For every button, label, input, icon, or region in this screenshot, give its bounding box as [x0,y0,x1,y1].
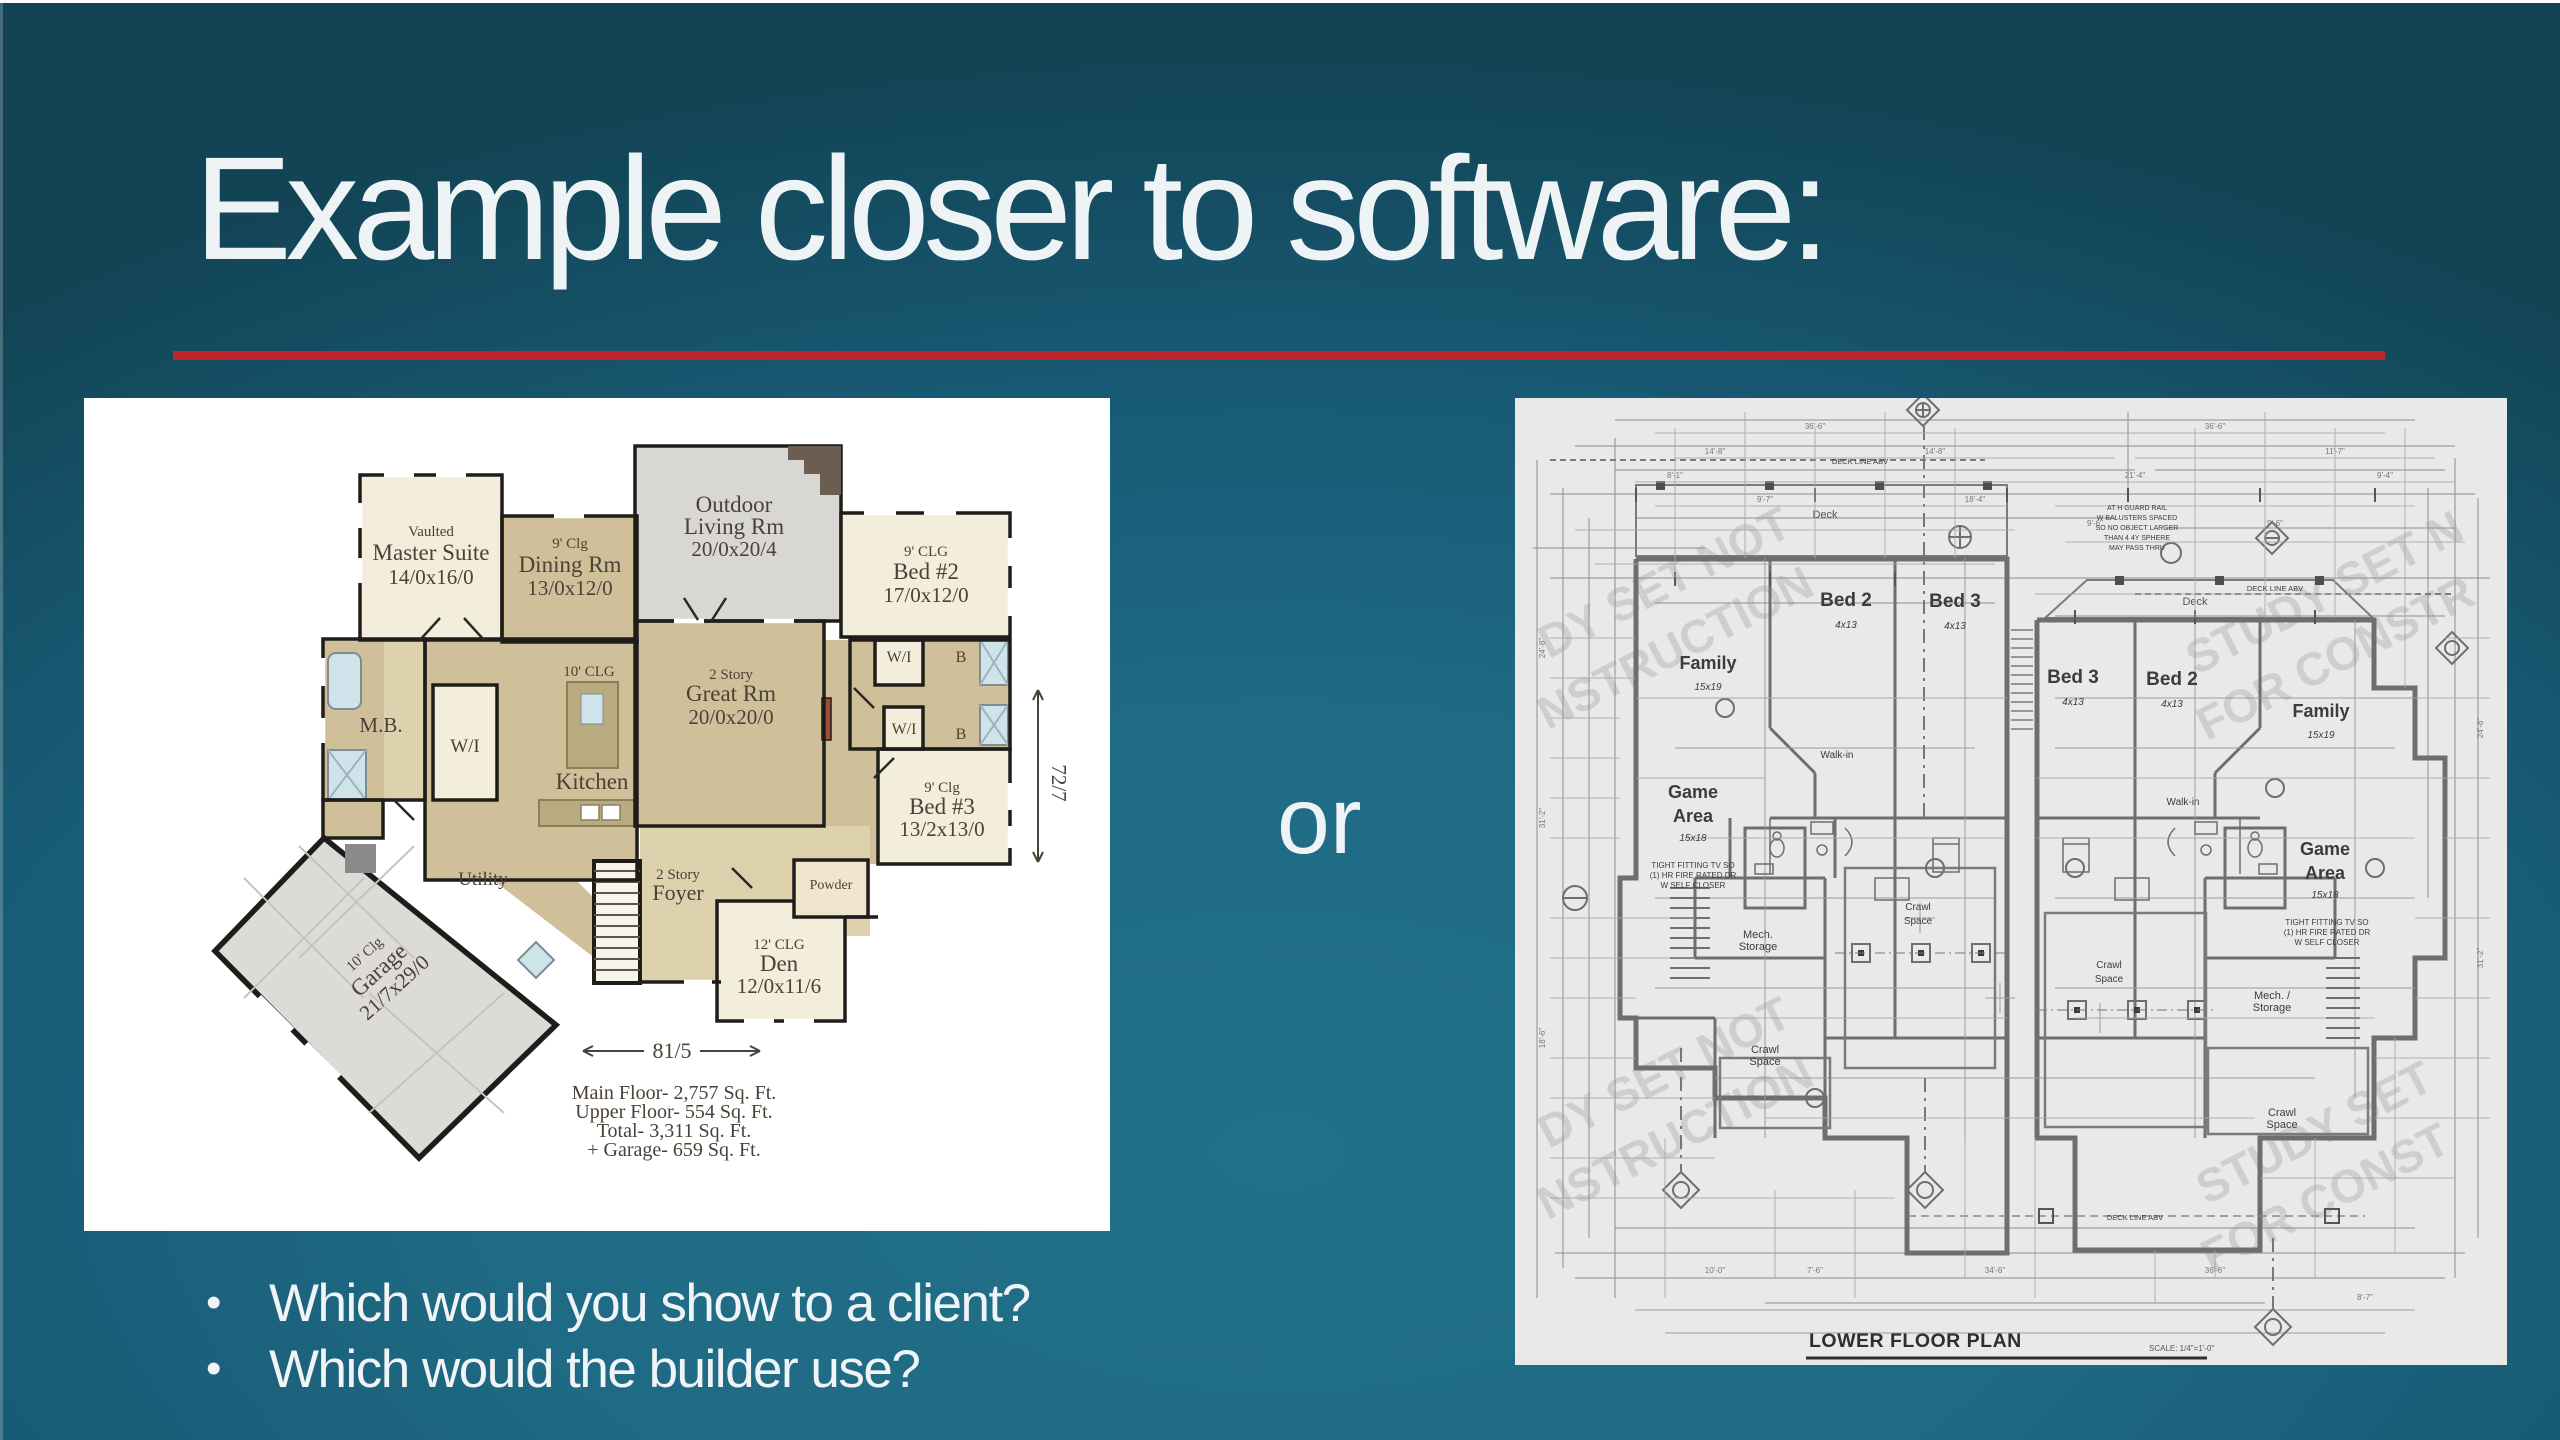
svg-text:12/0x11/6: 12/0x11/6 [737,974,821,998]
svg-text:Bed 2: Bed 2 [1820,590,1872,611]
svg-text:Great Rm: Great Rm [686,681,776,706]
svg-text:Master Suite: Master Suite [373,540,490,565]
svg-text:Bed 3: Bed 3 [2047,667,2099,688]
svg-text:B: B [956,726,967,743]
svg-text:9' CLG: 9' CLG [904,544,948,560]
svg-text:TIGHT FITTING TV SO: TIGHT FITTING TV SO [1651,861,1734,870]
svg-text:31'-2": 31'-2" [2476,948,2485,969]
svg-text:Mech.: Mech. [1743,929,1773,941]
svg-text:Space: Space [1904,916,1933,927]
svg-text:9'-7": 9'-7" [1757,495,1773,504]
svg-text:72/7: 72/7 [1047,764,1071,801]
svg-text:(1) HR FIRE RATED DR: (1) HR FIRE RATED DR [2284,928,2371,937]
svg-text:MAY PASS THRU: MAY PASS THRU [2109,545,2165,552]
svg-text:Walk-in: Walk-in [2167,797,2200,808]
svg-text:Kitchen: Kitchen [556,769,629,794]
svg-text:AT H GUARD RAIL: AT H GUARD RAIL [2107,505,2167,512]
svg-text:W/I: W/I [450,736,480,757]
svg-text:4x13: 4x13 [2161,699,2183,710]
svg-text:(1) HR FIRE RATED DR: (1) HR FIRE RATED DR [1650,871,1737,880]
svg-text:LOWER FLOOR PLAN: LOWER FLOOR PLAN [1809,1330,2022,1352]
svg-text:4x13: 4x13 [1835,620,1857,631]
svg-text:Crawl: Crawl [1751,1044,1779,1056]
svg-text:Bed 2: Bed 2 [2146,669,2198,690]
svg-text:DECK LINE ABV: DECK LINE ABV [2247,584,2303,593]
svg-text:Family: Family [1679,653,1736,673]
svg-text:W SELF CLOSER: W SELF CLOSER [1661,881,1726,890]
svg-text:Space: Space [2095,974,2124,985]
svg-text:14/0x16/0: 14/0x16/0 [388,565,473,589]
svg-text:W/I: W/I [892,721,917,738]
svg-text:10'-0": 10'-0" [1705,1266,1726,1275]
svg-text:14'-8": 14'-8" [1705,447,1726,456]
svg-text:W BALUSTERS SPACED: W BALUSTERS SPACED [2097,515,2177,522]
svg-text:9'-6": 9'-6" [2267,519,2283,528]
svg-text:Living Rm: Living Rm [684,514,784,539]
svg-text:Crawl: Crawl [2096,960,2122,971]
svg-text:Foyer: Foyer [652,880,704,905]
svg-text:THAN 4 4Y SPHERE: THAN 4 4Y SPHERE [2104,535,2170,542]
svg-text:+ Garage- 659 Sq. Ft.: + Garage- 659 Sq. Ft. [587,1139,760,1161]
svg-text:B: B [956,649,967,666]
svg-text:Crawl: Crawl [2268,1107,2296,1119]
svg-text:15x18: 15x18 [1679,833,1707,844]
svg-text:11'-7": 11'-7" [2325,447,2345,456]
svg-text:36'-6": 36'-6" [2205,1266,2226,1275]
svg-text:13/2x13/0: 13/2x13/0 [899,817,984,841]
svg-text:4x13: 4x13 [1944,621,1966,632]
svg-text:DECK LINE ABV: DECK LINE ABV [1832,457,1888,466]
svg-text:9' Clg: 9' Clg [552,536,588,552]
svg-text:24'-8": 24'-8" [2476,718,2485,739]
svg-text:Area: Area [2305,863,2346,883]
svg-text:Bed #2: Bed #2 [893,559,959,584]
svg-text:Game: Game [1668,782,1718,802]
svg-text:W SELF CLOSER: W SELF CLOSER [2295,938,2360,947]
svg-text:Utility: Utility [458,869,508,890]
svg-text:TIGHT FITTING TV SO: TIGHT FITTING TV SO [2285,918,2368,927]
svg-text:13/0x12/0: 13/0x12/0 [527,576,612,600]
svg-text:Family: Family [2292,701,2349,721]
svg-text:36'-6": 36'-6" [1805,422,1826,431]
svg-text:18'-6": 18'-6" [1538,1028,1547,1049]
svg-text:Space: Space [1749,1056,1780,1068]
svg-text:9'-4": 9'-4" [2377,471,2393,480]
svg-text:Area: Area [1673,806,1714,826]
svg-text:31'-2": 31'-2" [1538,808,1547,829]
svg-text:24'-8": 24'-8" [1538,638,1547,659]
svg-text:15x19: 15x19 [2307,730,2335,741]
svg-text:SO NO OBJECT LARGER: SO NO OBJECT LARGER [2096,525,2179,532]
svg-text:18'-4": 18'-4" [1965,495,1986,504]
svg-text:8'-7": 8'-7" [2357,1293,2373,1302]
svg-text:Deck: Deck [1812,509,1838,521]
svg-text:10' CLG: 10' CLG [563,664,615,680]
svg-text:17/0x12/0: 17/0x12/0 [883,583,968,607]
svg-text:Vaulted: Vaulted [408,524,454,540]
svg-text:20/0x20/0: 20/0x20/0 [688,705,773,729]
svg-text:14'-8": 14'-8" [1925,447,1946,456]
svg-text:Storage: Storage [2253,1002,2292,1014]
svg-text:Crawl: Crawl [1905,902,1931,913]
svg-text:Mech. /: Mech. / [2254,990,2291,1002]
svg-text:Storage: Storage [1739,941,1778,953]
svg-text:Space: Space [2266,1119,2297,1131]
svg-text:W/I: W/I [887,649,912,666]
svg-text:21'-4": 21'-4" [2125,471,2146,480]
svg-text:7'-6": 7'-6" [1807,1266,1823,1275]
svg-text:DECK LINE ABV: DECK LINE ABV [2107,1213,2163,1222]
svg-text:M.B.: M.B. [359,713,402,737]
svg-text:34'-6": 34'-6" [1985,1266,2006,1275]
svg-text:81/5: 81/5 [652,1038,691,1063]
svg-text:15x19: 15x19 [1694,682,1722,693]
svg-text:36'-6": 36'-6" [2205,422,2226,431]
svg-text:8'-1": 8'-1" [1667,471,1683,480]
svg-text:Den: Den [760,951,799,976]
svg-text:Game: Game [2300,839,2350,859]
svg-text:Bed #3: Bed #3 [909,794,975,819]
svg-text:Powder: Powder [810,878,853,893]
svg-text:Bed 3: Bed 3 [1929,591,1981,612]
svg-text:15x18: 15x18 [2311,890,2339,901]
svg-text:Walk-in: Walk-in [1821,750,1854,761]
svg-text:Dining Rm: Dining Rm [519,552,622,577]
svg-text:20/0x20/4: 20/0x20/4 [691,537,777,561]
svg-text:SCALE: 1/4"=1'-0": SCALE: 1/4"=1'-0" [2149,1344,2214,1353]
svg-text:4x13: 4x13 [2062,697,2084,708]
